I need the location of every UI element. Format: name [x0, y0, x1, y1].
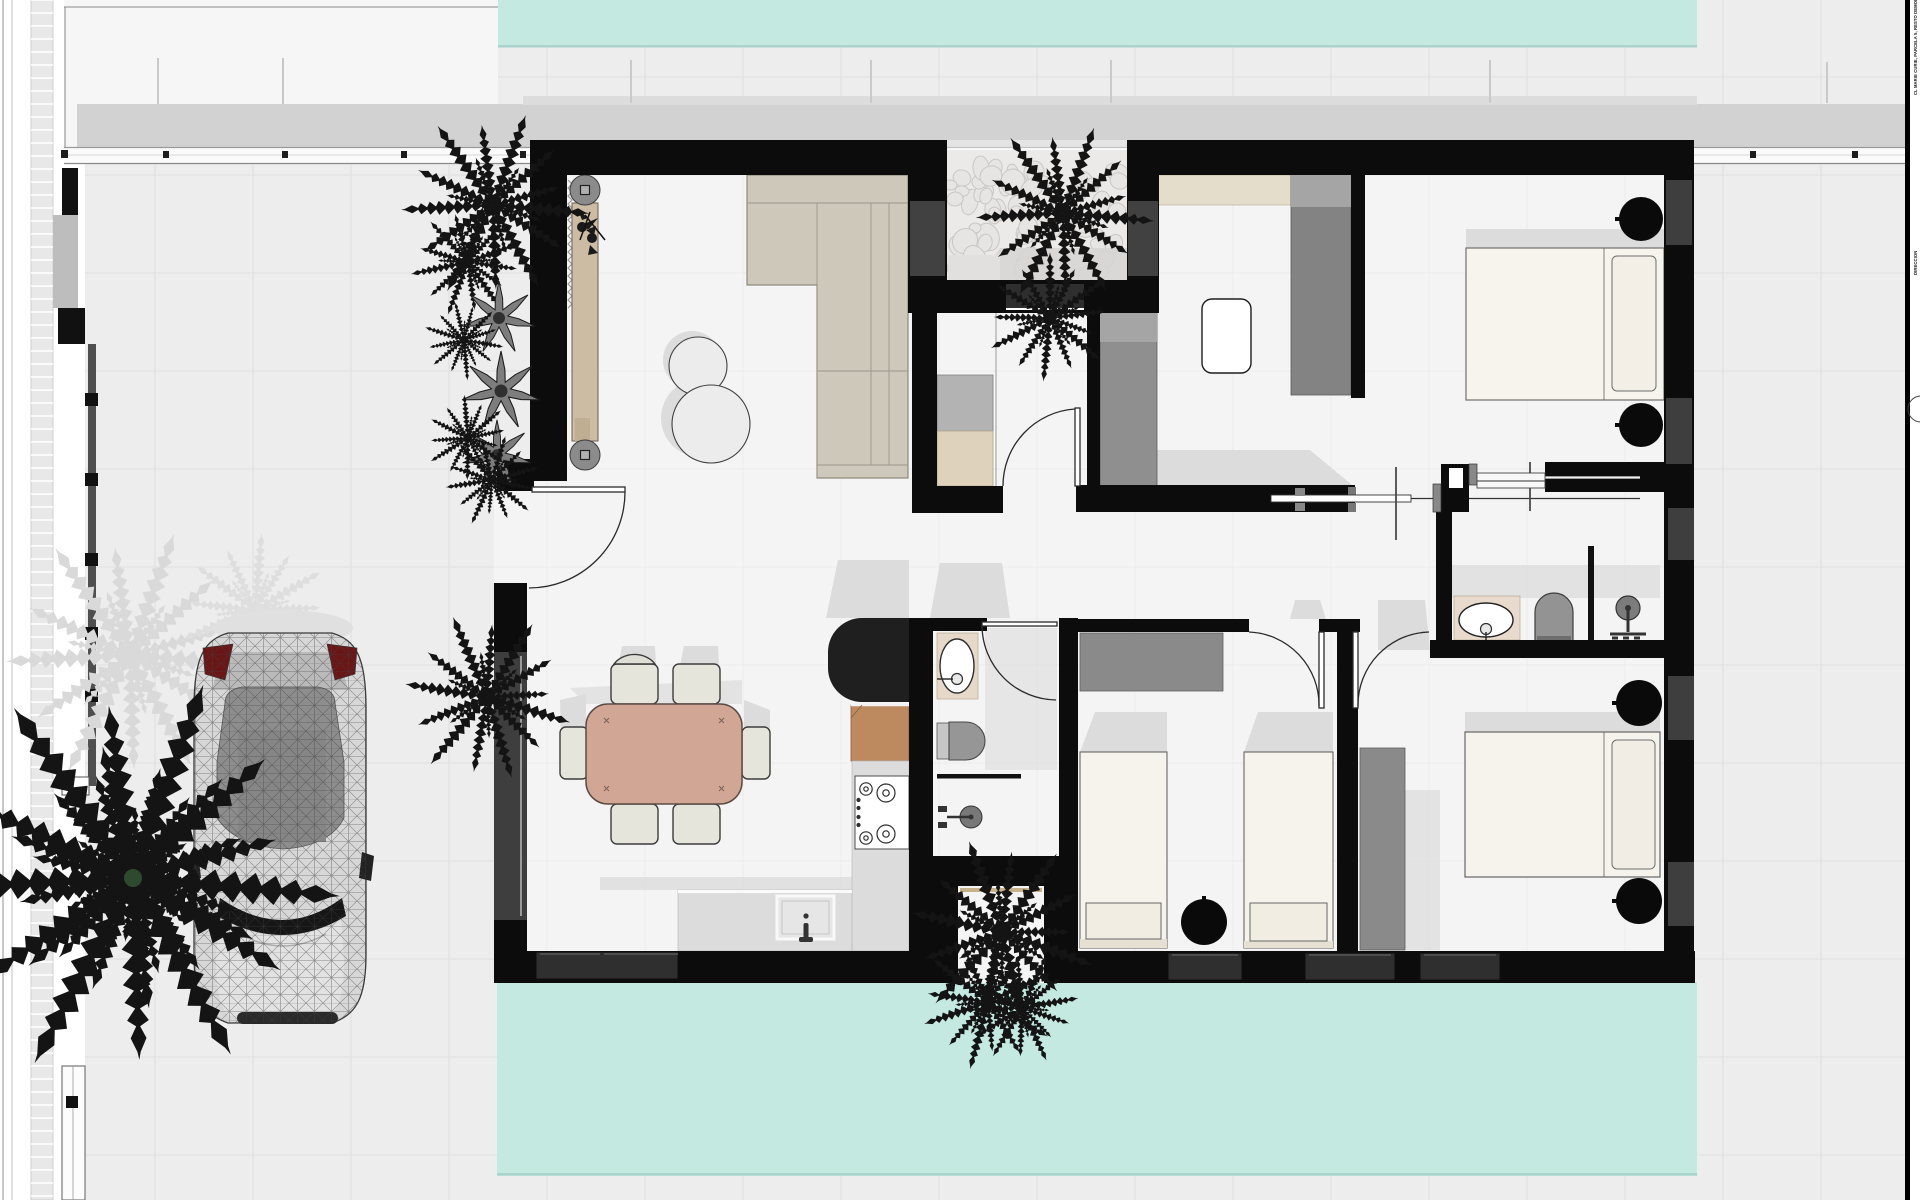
- svg-text:DIRECCION: DIRECCION: [1913, 251, 1918, 275]
- svg-text:CL MARIE CURIE, PARCELA 5, RES: CL MARIE CURIE, PARCELA 5, RESTO DEMOLIC…: [1913, 0, 1918, 95]
